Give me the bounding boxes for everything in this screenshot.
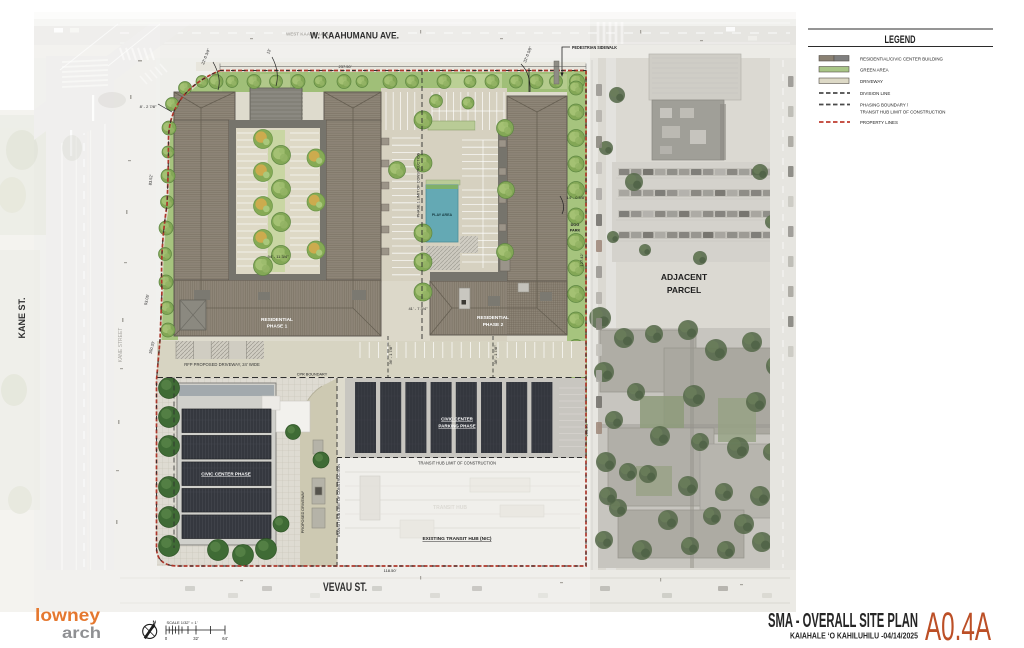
svg-text:RESIDENTIAL/CIVIC CENTER BUILD: RESIDENTIAL/CIVIC CENTER BUILDING bbox=[860, 57, 944, 62]
svg-text:KANE ST.: KANE ST. bbox=[17, 297, 27, 338]
svg-text:94' - 11 3/4": 94' - 11 3/4" bbox=[267, 254, 289, 259]
svg-text:PHASE 2: PHASE 2 bbox=[483, 322, 504, 328]
svg-text:TRANSIT HUB LIMIT OF CONSTRUCT: TRANSIT HUB LIMIT OF CONSTRUCTION bbox=[860, 110, 945, 115]
svg-text:LEGEND: LEGEND bbox=[885, 34, 916, 46]
svg-text:ADJACENT: ADJACENT bbox=[661, 272, 708, 282]
svg-text:PARKING PHASE: PARKING PHASE bbox=[438, 424, 475, 429]
svg-text:TRANSIT HUB LIMIT OF CONSTRUCT: TRANSIT HUB LIMIT OF CONSTRUCTION bbox=[337, 464, 341, 538]
svg-text:SMA - OVERALL SITE PLAN: SMA - OVERALL SITE PLAN bbox=[768, 610, 918, 632]
svg-text:PEDESTRIAN SIDEWALK: PEDESTRIAN SIDEWALK bbox=[572, 45, 618, 50]
svg-text:DRIVEWAY: DRIVEWAY bbox=[860, 79, 883, 84]
svg-text:SCALE 1/32" = 1': SCALE 1/32" = 1' bbox=[167, 620, 198, 625]
svg-text:RFP PROPOSED DRIVEWAY, 24' WID: RFP PROPOSED DRIVEWAY, 24' WIDE bbox=[184, 362, 260, 367]
svg-text:PHASING BOUNDARY /: PHASING BOUNDARY / bbox=[860, 103, 909, 108]
svg-text:lowney: lowney bbox=[35, 605, 100, 625]
svg-text:PARCEL: PARCEL bbox=[667, 285, 701, 295]
svg-text:DIVISION LINE: DIVISION LINE bbox=[860, 91, 890, 96]
svg-text:PROPOSED DRIVEWAY: PROPOSED DRIVEWAY bbox=[301, 490, 305, 533]
svg-text:8' - 2 7/8": 8' - 2 7/8" bbox=[140, 104, 157, 109]
svg-text:CIVIC CENTER: CIVIC CENTER bbox=[441, 417, 474, 422]
svg-text:118.50': 118.50' bbox=[384, 568, 397, 573]
svg-text:DOG: DOG bbox=[571, 223, 580, 227]
svg-text:127.42': 127.42' bbox=[579, 253, 584, 266]
svg-text:RESIDENTIAL: RESIDENTIAL bbox=[261, 317, 293, 323]
svg-text:41' - 7 3/4": 41' - 7 3/4" bbox=[408, 306, 428, 311]
svg-text:EXISTING TRANSIT HUB (NIC): EXISTING TRANSIT HUB (NIC) bbox=[422, 536, 491, 542]
svg-text:36' - 1 7/8": 36' - 1 7/8" bbox=[388, 345, 393, 365]
svg-text:PROPERTY LINES: PROPERTY LINES bbox=[860, 120, 898, 125]
svg-text:TRANSIT HUB LIMIT OF CONSTRUCT: TRANSIT HUB LIMIT OF CONSTRUCTION bbox=[418, 461, 496, 466]
svg-text:83.52': 83.52' bbox=[148, 174, 154, 185]
svg-text:RESIDENTIAL: RESIDENTIAL bbox=[477, 315, 509, 321]
svg-text:PHASE 1 LIMIT OF CONSTRUCTION: PHASE 1 LIMIT OF CONSTRUCTION bbox=[417, 152, 421, 217]
svg-text:VEVAU ST.: VEVAU ST. bbox=[323, 580, 367, 594]
svg-text:64': 64' bbox=[222, 636, 228, 641]
svg-text:38' - 1 7/8": 38' - 1 7/8" bbox=[493, 345, 498, 365]
svg-text:KANE STREET: KANE STREET bbox=[118, 328, 124, 363]
svg-text:CPR BOUNDARY: CPR BOUNDARY bbox=[297, 373, 328, 377]
svg-text:TRANSIT HUB: TRANSIT HUB bbox=[433, 505, 467, 511]
svg-text:GREEN AREA: GREEN AREA bbox=[860, 68, 889, 73]
svg-text:CIVIC CENTER PHASE: CIVIC CENTER PHASE bbox=[201, 472, 251, 477]
svg-text:W. KAAHUMANU AVE.: W. KAAHUMANU AVE. bbox=[310, 31, 399, 42]
svg-text:32': 32' bbox=[193, 636, 199, 641]
svg-text:260.30': 260.30' bbox=[584, 423, 589, 436]
svg-text:PLAY AREA: PLAY AREA bbox=[432, 213, 453, 217]
svg-text:A0.4A: A0.4A bbox=[925, 605, 991, 648]
svg-text:KAIAHALE ‘O KAHILUHILU -04/14/: KAIAHALE ‘O KAHILUHILU -04/14/2025 bbox=[790, 631, 918, 641]
svg-text:PHASE 1: PHASE 1 bbox=[267, 324, 288, 330]
svg-text:14' - 0 5/8": 14' - 0 5/8" bbox=[566, 195, 586, 200]
svg-text:arch: arch bbox=[62, 625, 101, 642]
svg-text:PARK: PARK bbox=[570, 229, 581, 233]
